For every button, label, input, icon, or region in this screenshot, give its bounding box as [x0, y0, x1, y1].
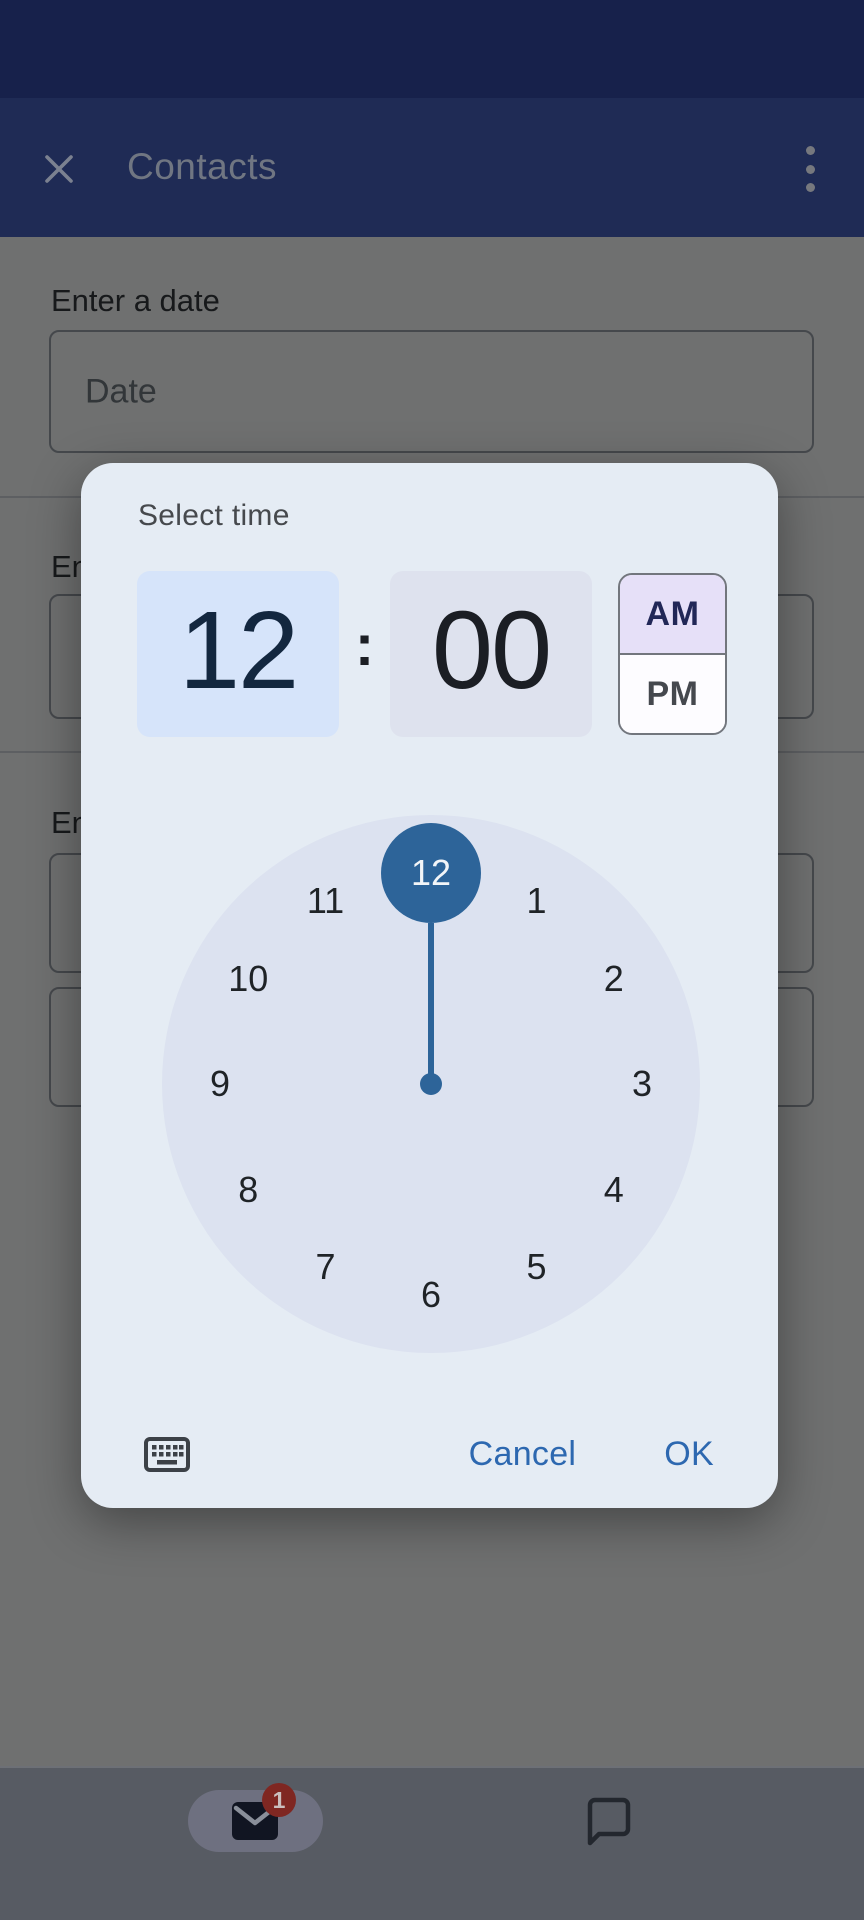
- clock-number-4[interactable]: 4: [582, 1158, 646, 1222]
- pm-button[interactable]: PM: [620, 655, 725, 733]
- nav-item-chat[interactable]: [582, 1795, 632, 1847]
- overflow-menu-dot: [806, 165, 815, 174]
- dialog-title: Select time: [138, 499, 290, 533]
- chat-bubble-icon: [590, 1800, 628, 1843]
- overflow-menu-dot: [806, 146, 815, 155]
- clock-number-2[interactable]: 2: [582, 947, 646, 1011]
- clock-hand: [428, 923, 434, 1084]
- bottom-nav-bar: 1: [0, 1766, 864, 1920]
- overflow-menu-button[interactable]: [801, 146, 819, 192]
- date-input[interactable]: Date: [49, 330, 814, 453]
- notification-badge: 1: [262, 1783, 296, 1817]
- clock-number-11[interactable]: 11: [294, 869, 358, 933]
- clock-dial[interactable]: 111098765432112 12: [162, 815, 700, 1353]
- keyboard-input-mode-button[interactable]: [143, 1430, 191, 1478]
- cancel-button[interactable]: Cancel: [469, 1435, 577, 1474]
- close-icon: [40, 150, 78, 188]
- clock-number-6[interactable]: 6: [399, 1263, 463, 1327]
- dialog-actions: Cancel OK: [81, 1429, 778, 1479]
- clock-number-7[interactable]: 7: [294, 1235, 358, 1299]
- close-button[interactable]: [40, 150, 78, 188]
- clock-number-1[interactable]: 1: [505, 869, 569, 933]
- clock-selected-hour[interactable]: 12: [381, 823, 481, 923]
- date-field-label: Enter a date: [51, 283, 220, 319]
- time-colon: :: [339, 571, 390, 729]
- date-placeholder: Date: [85, 372, 157, 411]
- clock-number-3[interactable]: 3: [610, 1052, 674, 1116]
- clock-number-8[interactable]: 8: [216, 1158, 280, 1222]
- clock-number-9[interactable]: 9: [188, 1052, 252, 1116]
- hour-input[interactable]: 12: [137, 571, 339, 737]
- ok-button[interactable]: OK: [664, 1435, 714, 1474]
- status-bar: [0, 0, 864, 98]
- clock-number-10[interactable]: 10: [216, 947, 280, 1011]
- clock-center-dot: [420, 1073, 442, 1095]
- minute-input[interactable]: 00: [390, 571, 592, 737]
- am-pm-toggle: AM PM: [618, 573, 727, 735]
- time-picker-dialog: Select time 12 : 00 AM PM 11109876543211…: [81, 463, 778, 1508]
- overflow-menu-dot: [806, 183, 815, 192]
- page-title: Contacts: [127, 146, 277, 188]
- nav-item-mail[interactable]: 1: [188, 1790, 323, 1852]
- clock-number-5[interactable]: 5: [505, 1235, 569, 1299]
- am-button[interactable]: AM: [620, 575, 725, 655]
